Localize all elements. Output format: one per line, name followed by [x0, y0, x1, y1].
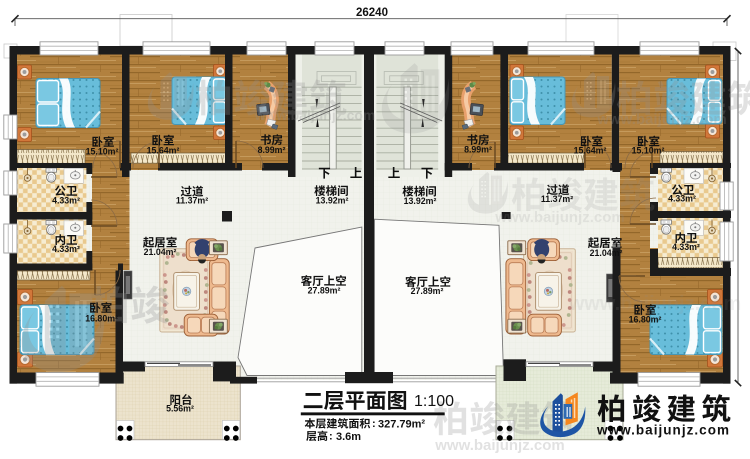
svg-text:8.99m²: 8.99m²	[464, 145, 492, 155]
svg-text:4.33m²: 4.33m²	[672, 242, 700, 252]
svg-text:11.37m²: 11.37m²	[176, 196, 208, 206]
svg-text:11.37m²: 11.37m²	[541, 194, 573, 204]
svg-text::: :	[329, 431, 333, 443]
svg-text:4.33m²: 4.33m²	[52, 196, 80, 206]
svg-text:3.6m: 3.6m	[336, 431, 361, 443]
svg-text:26240: 26240	[356, 7, 388, 19]
svg-text:13.92m²: 13.92m²	[404, 196, 437, 206]
svg-text:5.56m²: 5.56m²	[166, 404, 194, 414]
svg-text:www.baijunjz.com: www.baijunjz.com	[596, 423, 729, 438]
svg-text:327.79m²: 327.79m²	[378, 419, 425, 431]
svg-text:www.baijunjz.com: www.baijunjz.com	[596, 111, 726, 128]
svg-text:21.04m²: 21.04m²	[144, 247, 177, 257]
svg-text:21.04m²: 21.04m²	[590, 248, 623, 258]
svg-text::: :	[372, 418, 376, 430]
svg-text:www.baijunjz.com: www.baijunjz.com	[254, 107, 376, 123]
svg-text:www.baijunjz.com: www.baijunjz.com	[434, 437, 564, 454]
svg-text:4.33m²: 4.33m²	[52, 244, 80, 254]
svg-text:15.10m²: 15.10m²	[86, 147, 119, 157]
svg-text:15.10m²: 15.10m²	[632, 146, 665, 156]
svg-text:13.92m²: 13.92m²	[316, 196, 349, 206]
svg-text:15.64m²: 15.64m²	[574, 146, 607, 156]
svg-text:8.99m²: 8.99m²	[258, 145, 286, 155]
svg-text:27.89m²: 27.89m²	[308, 286, 341, 296]
svg-text:27.89m²: 27.89m²	[411, 286, 444, 296]
svg-text:1:100: 1:100	[414, 393, 454, 410]
svg-text:www.baijunjz.com: www.baijunjz.com	[494, 209, 624, 226]
svg-text:4.33m²: 4.33m²	[668, 194, 696, 204]
svg-text:16.80m²: 16.80m²	[85, 314, 118, 324]
svg-text:16.80m²: 16.80m²	[629, 315, 662, 325]
svg-text:15.64m²: 15.64m²	[147, 146, 180, 156]
